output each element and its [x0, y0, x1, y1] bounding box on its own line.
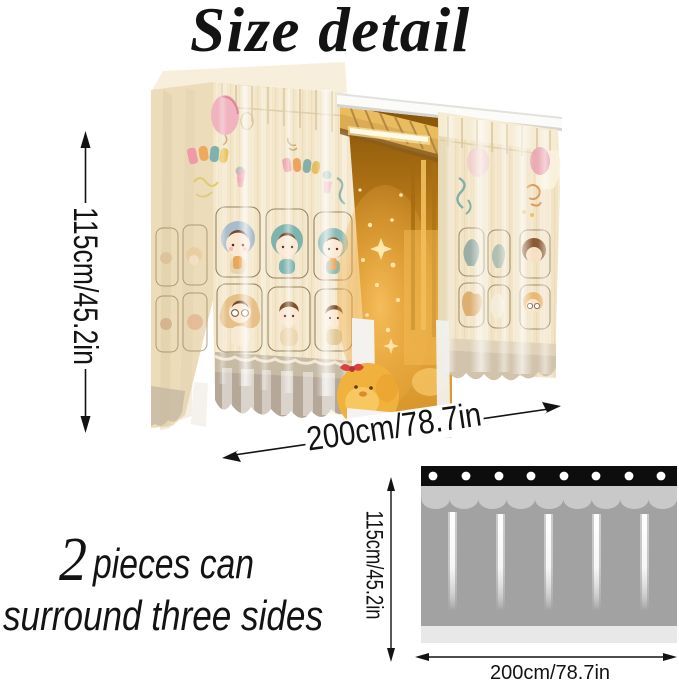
svg-text:115cm/45.2in: 115cm/45.2in — [361, 511, 388, 620]
svg-text:surround three sides: surround three sides — [3, 592, 323, 639]
svg-text:pieces can: pieces can — [91, 540, 254, 587]
svg-text:2: 2 — [59, 526, 87, 594]
svg-text:115cm/45.2in: 115cm/45.2in — [66, 207, 104, 365]
svg-text:200cm/78.7in: 200cm/78.7in — [490, 662, 610, 684]
